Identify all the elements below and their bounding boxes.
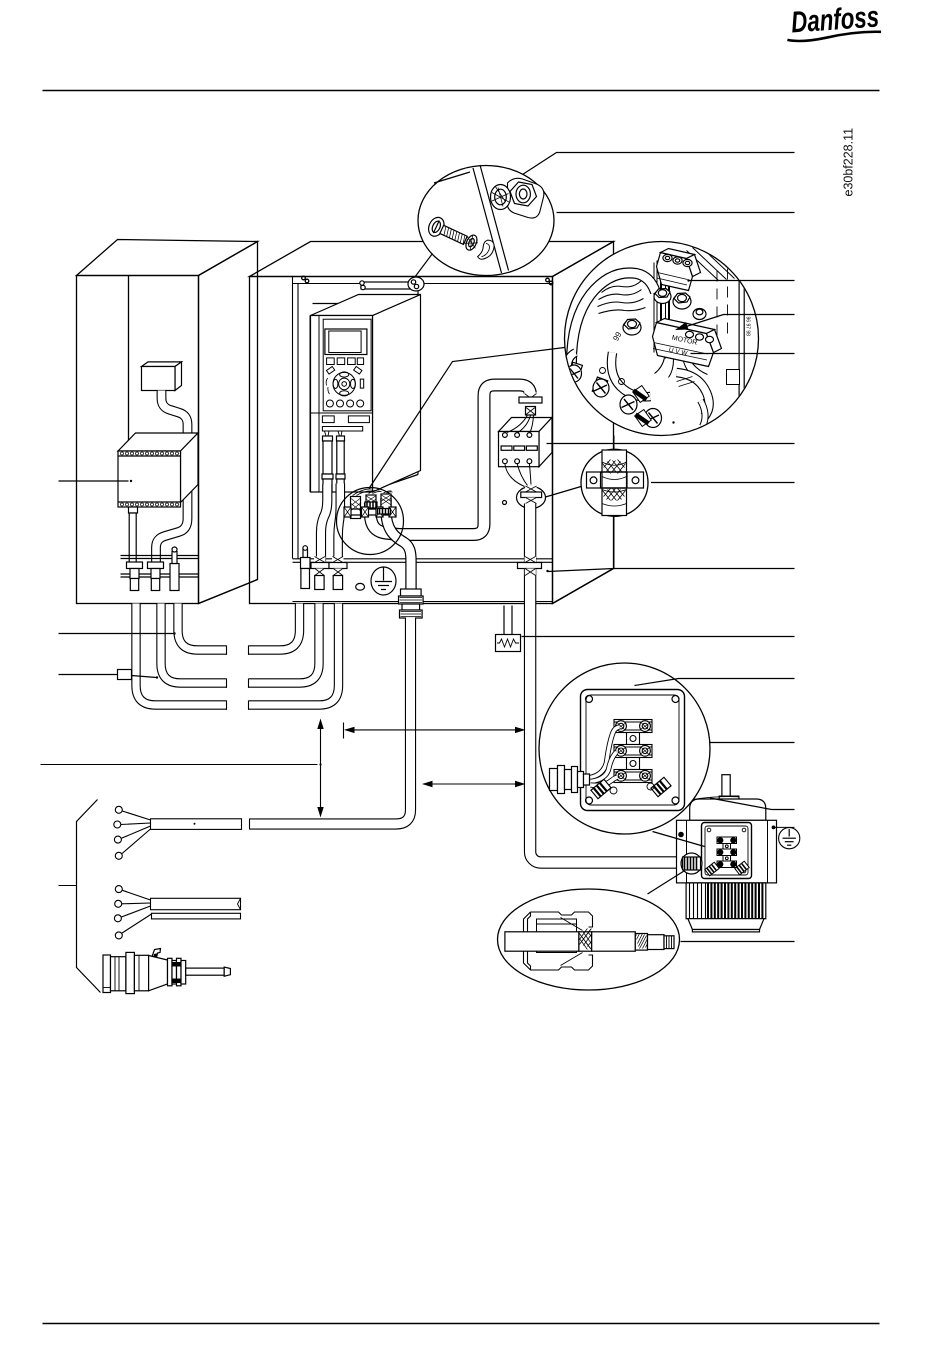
svg-text:e30bf228.11: e30bf228.11 [842, 128, 856, 197]
svg-text:Danfoss: Danfoss [790, 0, 880, 39]
svg-text:96 97 98: 96 97 98 [745, 317, 751, 337]
